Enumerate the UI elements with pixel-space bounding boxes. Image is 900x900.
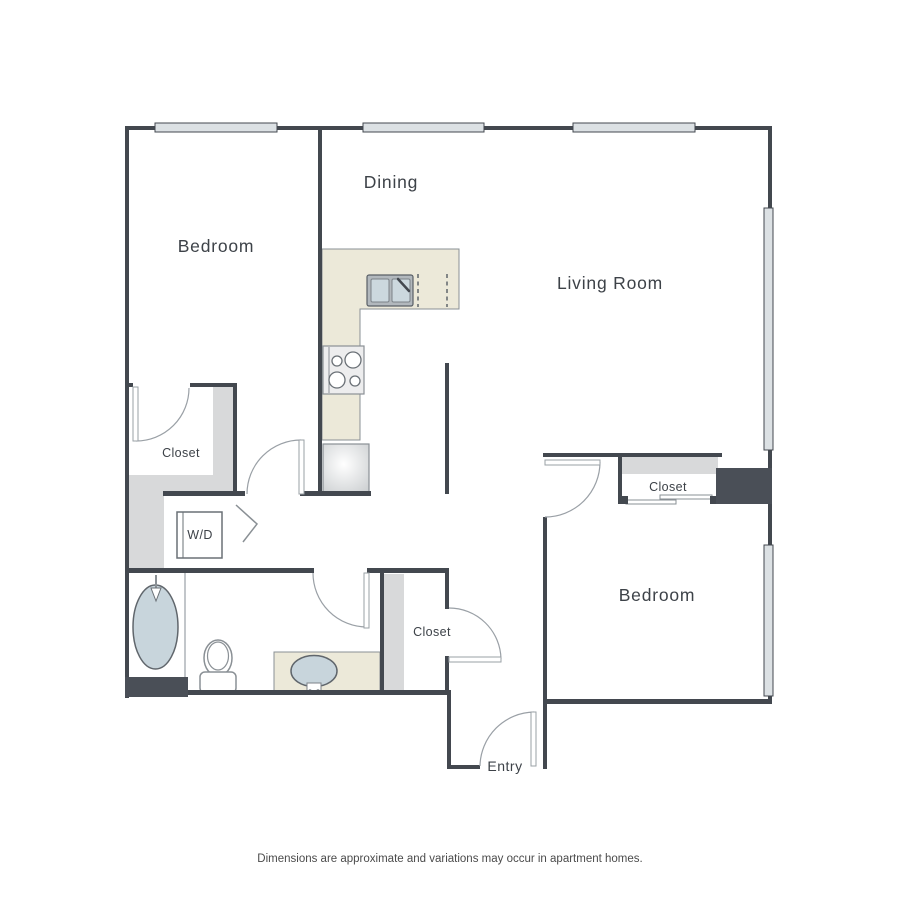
window-bedroom2 — [764, 545, 773, 696]
wall-hall-top-a — [163, 491, 245, 496]
label-bedroom-bottom: Bedroom — [619, 585, 696, 605]
wall-closet1-top-a — [125, 383, 133, 387]
disclaimer-text: Dimensions are approximate and variation… — [257, 853, 642, 865]
vanity-sink — [291, 656, 337, 687]
wall-bedroom2-bottom — [545, 699, 772, 704]
closet2-door-leaf — [449, 657, 501, 662]
stove — [323, 346, 364, 394]
wall-closet3-left — [618, 455, 622, 504]
bathroom-door-arc — [313, 573, 367, 627]
closet-bedroom2-shelf — [622, 457, 718, 474]
toilet — [200, 640, 236, 693]
wall-left — [125, 126, 129, 698]
burner-small-br — [350, 376, 360, 386]
label-dining: Dining — [364, 172, 418, 192]
label-closet-entry: Closet — [413, 625, 451, 639]
window-living-room — [764, 208, 773, 450]
slider-panel-right — [660, 495, 712, 499]
sink-basin-left — [371, 279, 389, 302]
burner-large-tr — [345, 352, 361, 368]
burner-small-tl — [332, 356, 342, 366]
slider-panel-left — [626, 500, 676, 504]
wall-thick-block-bathroom — [125, 677, 188, 697]
wall-entry-right — [543, 701, 547, 769]
label-wd: W/D — [187, 528, 213, 542]
wall-bedroom1-right — [318, 128, 322, 494]
bathroom-door-leaf — [364, 573, 369, 628]
wall-entry-left — [447, 692, 451, 769]
wall-closet2-right-b — [445, 656, 449, 692]
closet-left-shelf-band — [127, 475, 235, 493]
closet1-door-leaf — [133, 387, 138, 441]
label-entry: Entry — [487, 758, 522, 774]
wall-bath-top-a — [125, 568, 314, 573]
wall-closet2-left — [380, 571, 384, 692]
kitchen-sink — [367, 275, 413, 306]
closet-entry-shelf-band — [384, 574, 404, 690]
wall-kitchen-living — [445, 363, 449, 494]
entry-door-leaf — [531, 712, 536, 766]
label-closet-left: Closet — [162, 446, 200, 460]
label-living-room: Living Room — [557, 273, 663, 293]
vanity — [274, 652, 380, 693]
wall-bath-top-b — [367, 568, 449, 573]
wall-thick-block-closet3 — [716, 468, 772, 504]
window-top-right — [573, 123, 695, 132]
wall-closet1-right — [233, 383, 237, 496]
label-closet-bedroom2: Closet — [649, 480, 687, 494]
wd-bifold-door — [236, 505, 257, 542]
bathroom — [133, 573, 380, 693]
floorplan-svg: Bedroom Dining Living Room Closet W/D Cl… — [0, 0, 900, 900]
wall-hall-top-b — [300, 491, 371, 496]
toilet-tank — [200, 672, 236, 693]
wall-closet1-top-b — [190, 383, 237, 387]
wall-bedroom2-left — [543, 517, 547, 703]
hall-gray-column — [127, 493, 164, 569]
wall-closet2-right-a — [445, 571, 449, 609]
burner-large-bl — [329, 372, 345, 388]
kitchen — [322, 249, 459, 492]
refrigerator — [323, 444, 369, 492]
bedroom2-door-leaf — [545, 460, 600, 465]
window-top-middle — [363, 123, 484, 132]
floorplan-canvas: Bedroom Dining Living Room Closet W/D Cl… — [0, 0, 900, 900]
wall-entry-bottom — [447, 765, 480, 769]
bedroom1-door-arc — [247, 440, 301, 494]
bedroom1-door-leaf — [299, 440, 304, 494]
bedroom2-door-arc — [545, 462, 600, 517]
closet2-door-arc — [449, 608, 501, 659]
label-bedroom-top: Bedroom — [178, 236, 255, 256]
closet-bedroom2-sliders — [618, 495, 719, 504]
window-top-left — [155, 123, 277, 132]
closet1-door-arc — [136, 388, 189, 441]
wall-bedroom2-top — [543, 453, 722, 457]
